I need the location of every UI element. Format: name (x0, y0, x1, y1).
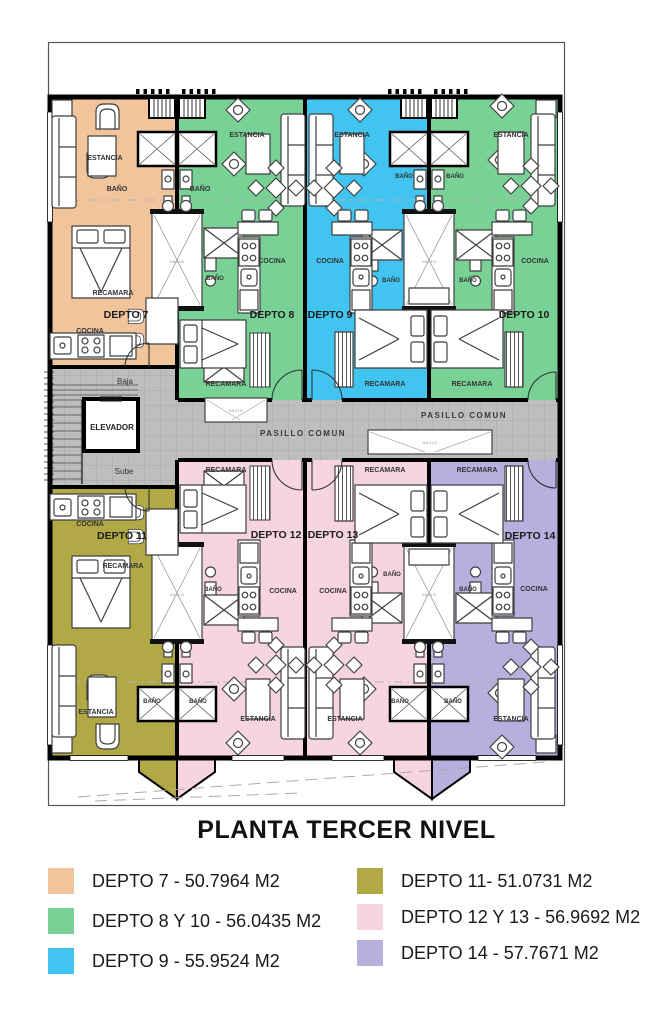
legend-swatch-depto11 (357, 868, 383, 894)
unit-label-depto9: DEPTO 9 (308, 309, 353, 321)
room-label-recamara: RECAMARA (452, 381, 493, 388)
legend-label-depto8y10: DEPTO 8 Y 10 - 56.0435 M2 (92, 911, 321, 932)
room-label-estancia: ESTANCIA (493, 716, 528, 723)
room-label-bano: BAÑO (459, 586, 477, 593)
room-label-estancia: ESTANCIA (78, 709, 113, 716)
room-label-cocina: COCINA (316, 258, 344, 265)
room-label-bano: BAÑO (391, 698, 409, 705)
legend-label-depto7: DEPTO 7 - 50.7964 M2 (92, 871, 280, 892)
floor-plan: ESTANCIA ESTANCIA ESTANCIA ESTANCIA BAÑO… (0, 0, 665, 812)
room-label-cocina: COCINA (269, 588, 297, 595)
legend-swatch-depto14 (357, 940, 383, 966)
legend-label-depto9: DEPTO 9 - 55.9524 M2 (92, 951, 280, 972)
room-label-recamara: RECAMARA (365, 381, 406, 388)
room-label-bano: BAÑO (206, 275, 224, 282)
void-label: VACIO (423, 440, 438, 445)
room-label-elevador: ELEVADOR (90, 423, 134, 432)
room-label-estancia: ESTANCIA (327, 716, 362, 723)
legend-swatch-depto8y10 (48, 908, 74, 934)
floor-plan-page: ESTANCIA ESTANCIA ESTANCIA ESTANCIA BAÑO… (0, 0, 665, 1024)
stair-label-sube: Sube (115, 467, 134, 476)
room-label-estancia: ESTANCIA (229, 132, 264, 139)
room-label-cocina: COCINA (521, 258, 549, 265)
room-label-bano: BAÑO (444, 698, 462, 705)
room-label-bano: BAÑO (204, 586, 222, 593)
unit-label-depto8: DEPTO 8 (250, 309, 295, 321)
room-label-cocina: COCINA (258, 258, 286, 265)
room-label-recamara: RECAMARA (93, 290, 134, 297)
room-label-cocina: COCINA (76, 328, 104, 335)
unit-label-depto13: DEPTO 13 (308, 529, 359, 541)
room-label-recamara: RECAMARA (206, 467, 247, 474)
legend-swatch-depto12y13 (357, 904, 383, 930)
room-label-bano: BAÑO (190, 184, 211, 193)
legend-item-depto14: DEPTO 14 - 57.7671 M2 (357, 940, 599, 966)
legend-item-depto11: DEPTO 11- 51.0731 M2 (357, 868, 592, 894)
room-label-cocina: COCINA (520, 586, 548, 593)
room-label-cocina: COCINA (76, 521, 104, 528)
legend-label-depto14: DEPTO 14 - 57.7671 M2 (401, 943, 599, 964)
room-label-pasillo-comun: PASILLO COMUN (421, 411, 507, 420)
room-label-bano: BAÑO (382, 277, 400, 284)
unit-label-depto10: DEPTO 10 (499, 309, 550, 321)
room-label-bano: BAÑO (189, 698, 207, 705)
room-label-estancia: ESTANCIA (87, 155, 122, 162)
void-label: VACIO (170, 259, 185, 264)
void-label: VACIO (170, 592, 185, 597)
room-label-bano: BAÑO (107, 184, 128, 193)
room-label-recamara: RECAMARA (457, 467, 498, 474)
legend-label-depto12y13: DEPTO 12 Y 13 - 56.9692 M2 (401, 907, 640, 928)
plan-title: PLANTA TERCER NIVEL (0, 816, 665, 845)
room-label-recamara: RECAMARA (103, 563, 144, 570)
room-label-bano: BAÑO (383, 571, 401, 578)
room-label-recamara: RECAMARA (206, 381, 247, 388)
unit-label-depto7: DEPTO 7 (104, 309, 149, 321)
legend-label-depto11: DEPTO 11- 51.0731 M2 (401, 871, 592, 892)
unit-label-depto11: DEPTO 11 (97, 530, 147, 542)
legend-swatch-depto7 (48, 868, 74, 894)
room-label-bano: BAÑO (143, 698, 161, 705)
legend-item-depto9: DEPTO 9 - 55.9524 M2 (48, 948, 280, 974)
room-label-estancia: ESTANCIA (493, 132, 528, 139)
legend-swatch-depto9 (48, 948, 74, 974)
unit-label-depto14: DEPTO 14 (505, 530, 556, 542)
room-label-bano: BAÑO (395, 173, 413, 180)
legend-item-depto12y13: DEPTO 12 Y 13 - 56.9692 M2 (357, 904, 640, 930)
room-label-estancia: ESTANCIA (334, 132, 369, 139)
room-label-pasillo-comun: PASILLO COMUN (260, 429, 346, 438)
room-label-bano: BAÑO (459, 277, 477, 284)
void-label: VACIO (422, 259, 437, 264)
stair-label-baja: Baja (117, 377, 134, 386)
void-label: VACIO (422, 592, 437, 597)
room-label-cocina: COCINA (319, 588, 347, 595)
room-label-recamara: RECAMARA (365, 467, 406, 474)
bed-icon (72, 226, 130, 298)
legend-item-depto8y10: DEPTO 8 Y 10 - 56.0435 M2 (48, 908, 321, 934)
unit-label-depto12: DEPTO 12 (251, 529, 302, 541)
room-label-estancia: ESTANCIA (240, 716, 275, 723)
legend-item-depto7: DEPTO 7 - 50.7964 M2 (48, 868, 280, 894)
void-label: VACIO (229, 408, 244, 413)
room-label-bano: BAÑO (446, 173, 464, 180)
